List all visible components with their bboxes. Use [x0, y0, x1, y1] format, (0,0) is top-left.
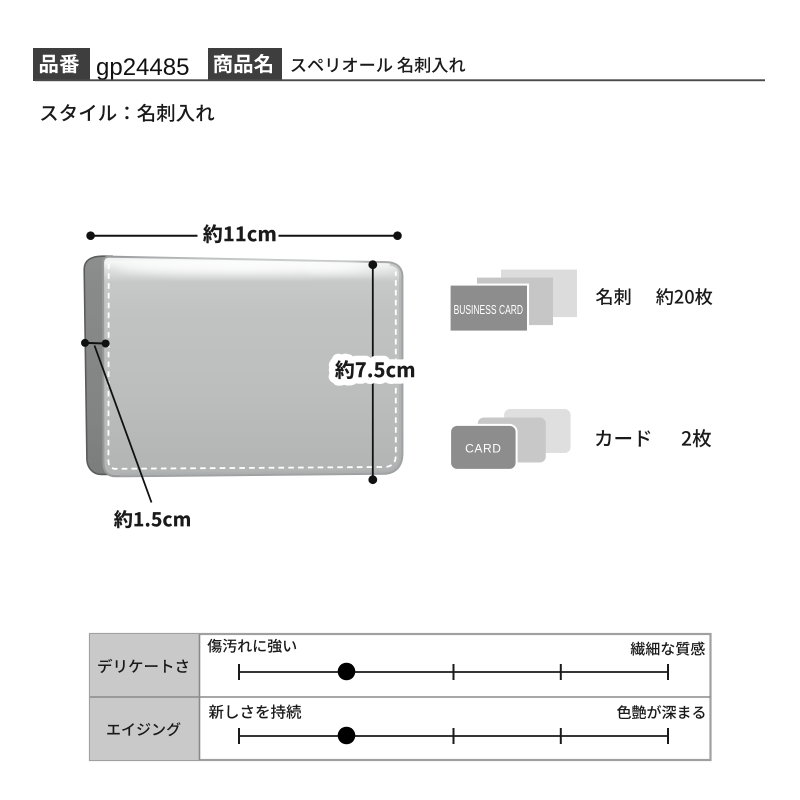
svg-text:gp24485: gp24485	[96, 54, 189, 81]
svg-text:CARD: CARD	[465, 441, 501, 455]
svg-text:BUSINESS CARD: BUSINESS CARD	[454, 303, 523, 317]
